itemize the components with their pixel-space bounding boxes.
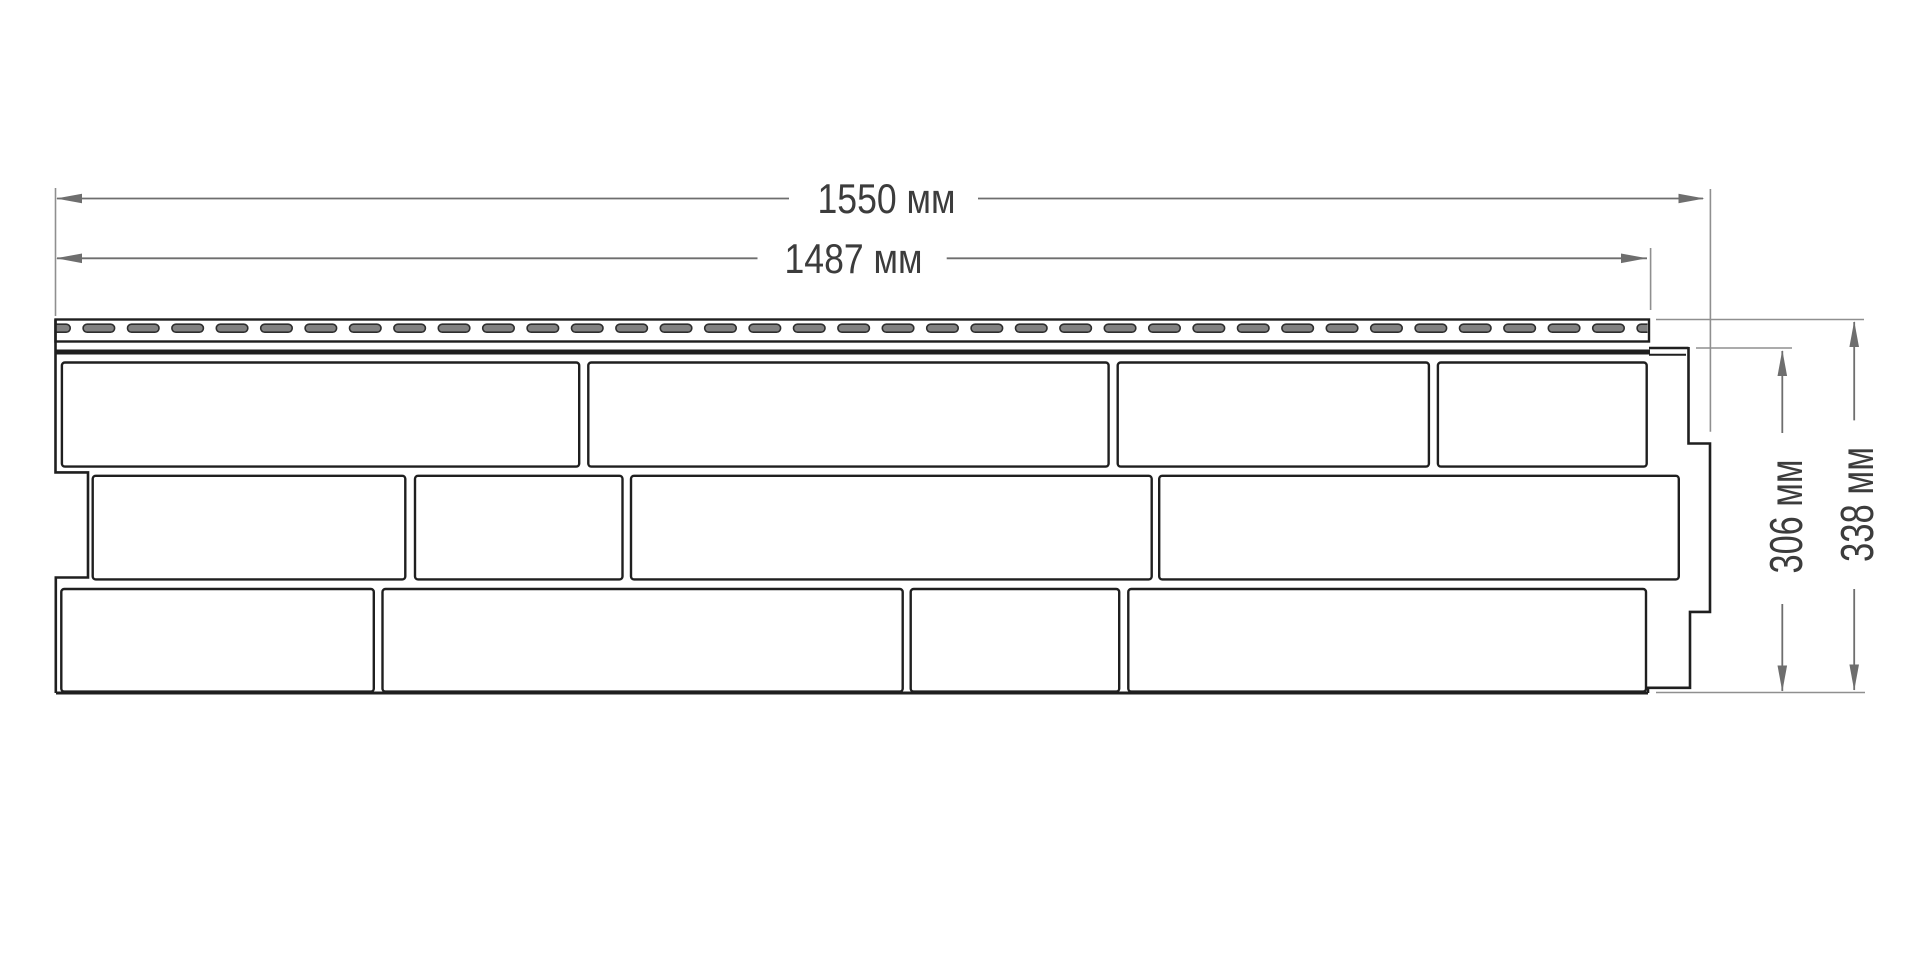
svg-text:1487 мм: 1487 мм bbox=[785, 235, 923, 282]
svg-text:338 мм: 338 мм bbox=[1831, 447, 1883, 562]
svg-text:1550 мм: 1550 мм bbox=[818, 175, 956, 222]
svg-text:306 мм: 306 мм bbox=[1760, 460, 1812, 574]
